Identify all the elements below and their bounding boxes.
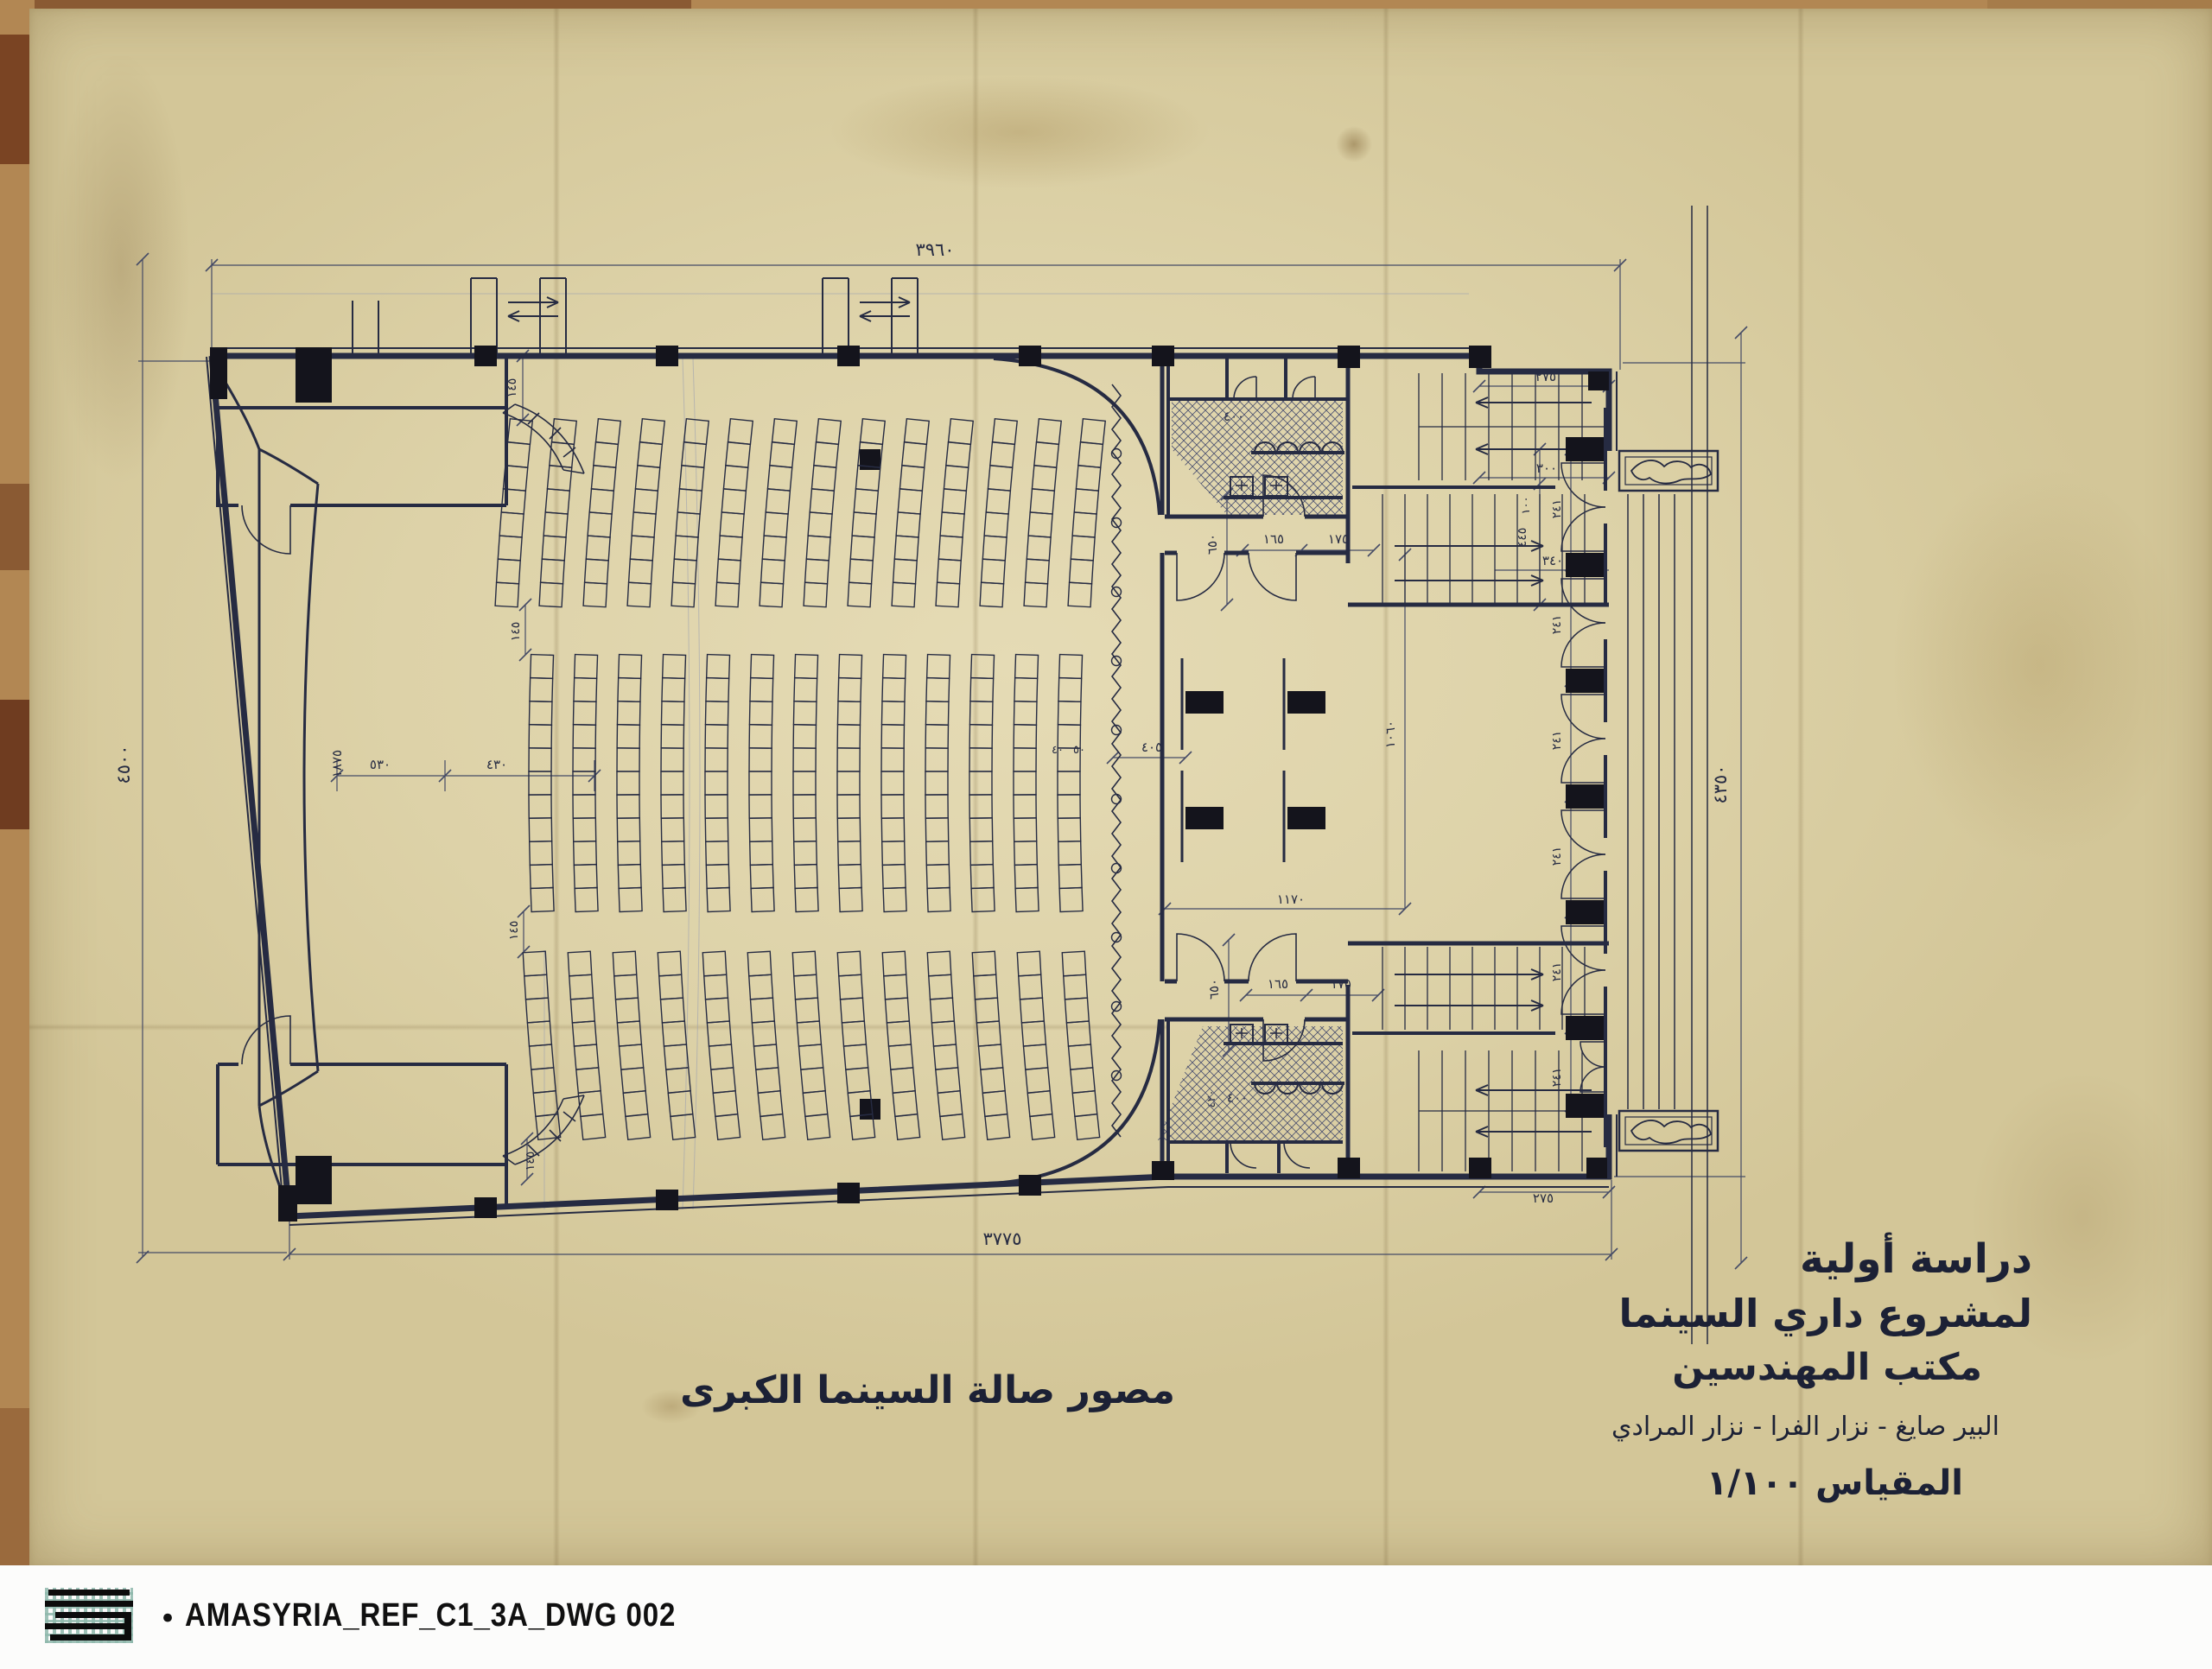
exit-corridors	[353, 278, 918, 356]
seating-banks	[495, 419, 1105, 1140]
logo-bar	[50, 1634, 128, 1640]
sanitary-fixtures	[1230, 442, 1343, 1094]
svg-text:١٧٥: ١٧٥	[1328, 531, 1349, 547]
logo-bar	[45, 1601, 133, 1607]
svg-text:٢٤١: ٢٤١	[1550, 1068, 1564, 1088]
footer-bullet: •	[159, 1602, 176, 1636]
title-line-5-scale: المقياس ١/١٠٠	[1707, 1463, 1963, 1503]
svg-text:٢٤١: ٢٤١	[1550, 615, 1564, 635]
svg-text:١٠٦٠: ١٠٦٠	[1382, 720, 1398, 748]
svg-text:٦٥٠: ٦٥٠	[1206, 979, 1222, 999]
svg-text:٥٠: ٥٠	[1073, 744, 1085, 757]
scanned-drawing-sheet: ٣٩٦٠٣٧٧٥٤٥٠٠٤٣٥٠١٨٧٥٥٣٠٤٣٠١٤٥١٤٥١٤٥١٤٥٤٠…	[0, 0, 2212, 1669]
exit-arrows	[508, 297, 910, 321]
svg-text:٦٥٠: ٦٥٠	[1205, 534, 1220, 555]
interior-walls	[213, 356, 1609, 1211]
svg-text:١٨٧٥: ١٨٧٥	[329, 750, 345, 777]
svg-text:٣٠٠: ٣٠٠	[1536, 460, 1557, 476]
svg-text:١٦٥: ١٦٥	[1263, 531, 1284, 547]
archive-bars-logo	[45, 1588, 133, 1643]
plan-caption: مصور صالة السينما الكبرى	[760, 1368, 1175, 1412]
svg-text:٥٣٠: ٥٣٠	[370, 757, 391, 772]
svg-text:١٦٥: ١٦٥	[1268, 976, 1288, 992]
title-line-2: لمشروع داري السينما	[1619, 1291, 2032, 1336]
fan-steps	[503, 404, 584, 1164]
entrance-terrace-steps	[1628, 206, 1707, 1344]
dimension-labels: ٣٩٦٠٣٧٧٥٤٥٠٠٤٣٥٠١٨٧٥٥٣٠٤٣٠١٤٥١٤٥١٤٥١٤٥٤٠…	[113, 239, 1731, 1249]
svg-text:٣٩٦٠: ٣٩٦٠	[915, 239, 954, 260]
svg-text:٢٤١: ٢٤١	[1550, 847, 1564, 866]
svg-text:٤٠٥: ٤٠٥	[1141, 739, 1162, 755]
svg-text:٢٤١: ٢٤١	[1550, 731, 1564, 751]
staircases	[1382, 373, 1605, 1171]
title-line-4-engineers: البير صايغ - نزار الفرا - نزار المرادي	[1611, 1412, 1999, 1442]
planter-boxes	[1619, 451, 1718, 1151]
title-line-1: دراسة أولية	[1800, 1235, 2032, 1283]
logo-bar	[124, 1612, 131, 1640]
svg-text:١٠٠: ١٠٠	[1520, 497, 1533, 515]
title-line-3: مكتب المهندسين	[1672, 1346, 1982, 1389]
svg-text:١٤٥: ١٤٥	[507, 921, 521, 941]
reference-label: AMASYRIA_REF_C1_3A_DWG 002	[185, 1597, 676, 1634]
toilet-hatched-floor	[1158, 401, 1343, 1140]
svg-text:٤٣٠: ٤٣٠	[486, 757, 507, 772]
foyer-pier-plates	[1182, 658, 1284, 862]
logo-bar	[48, 1590, 130, 1596]
svg-text:٣٧٧٥: ٣٧٧٥	[982, 1228, 1021, 1249]
svg-text:٢٧٥: ٢٧٥	[1533, 1190, 1554, 1206]
logo-bar	[55, 1612, 126, 1618]
svg-text:١٤٥: ١٤٥	[509, 622, 523, 642]
structural-columns	[210, 346, 1609, 1222]
svg-text:٤٣٥٠: ٤٣٥٠	[1710, 765, 1731, 803]
logo-bar	[45, 1623, 128, 1629]
svg-text:٣٤٠: ٣٤٠	[1542, 553, 1563, 568]
svg-text:٤٥٠٠: ٤٥٠٠	[113, 745, 134, 784]
svg-text:١١٧٠: ١١٧٠	[1277, 892, 1305, 907]
entrance-doors	[1561, 408, 1605, 1147]
acoustic-rear-wall	[1112, 384, 1122, 1137]
